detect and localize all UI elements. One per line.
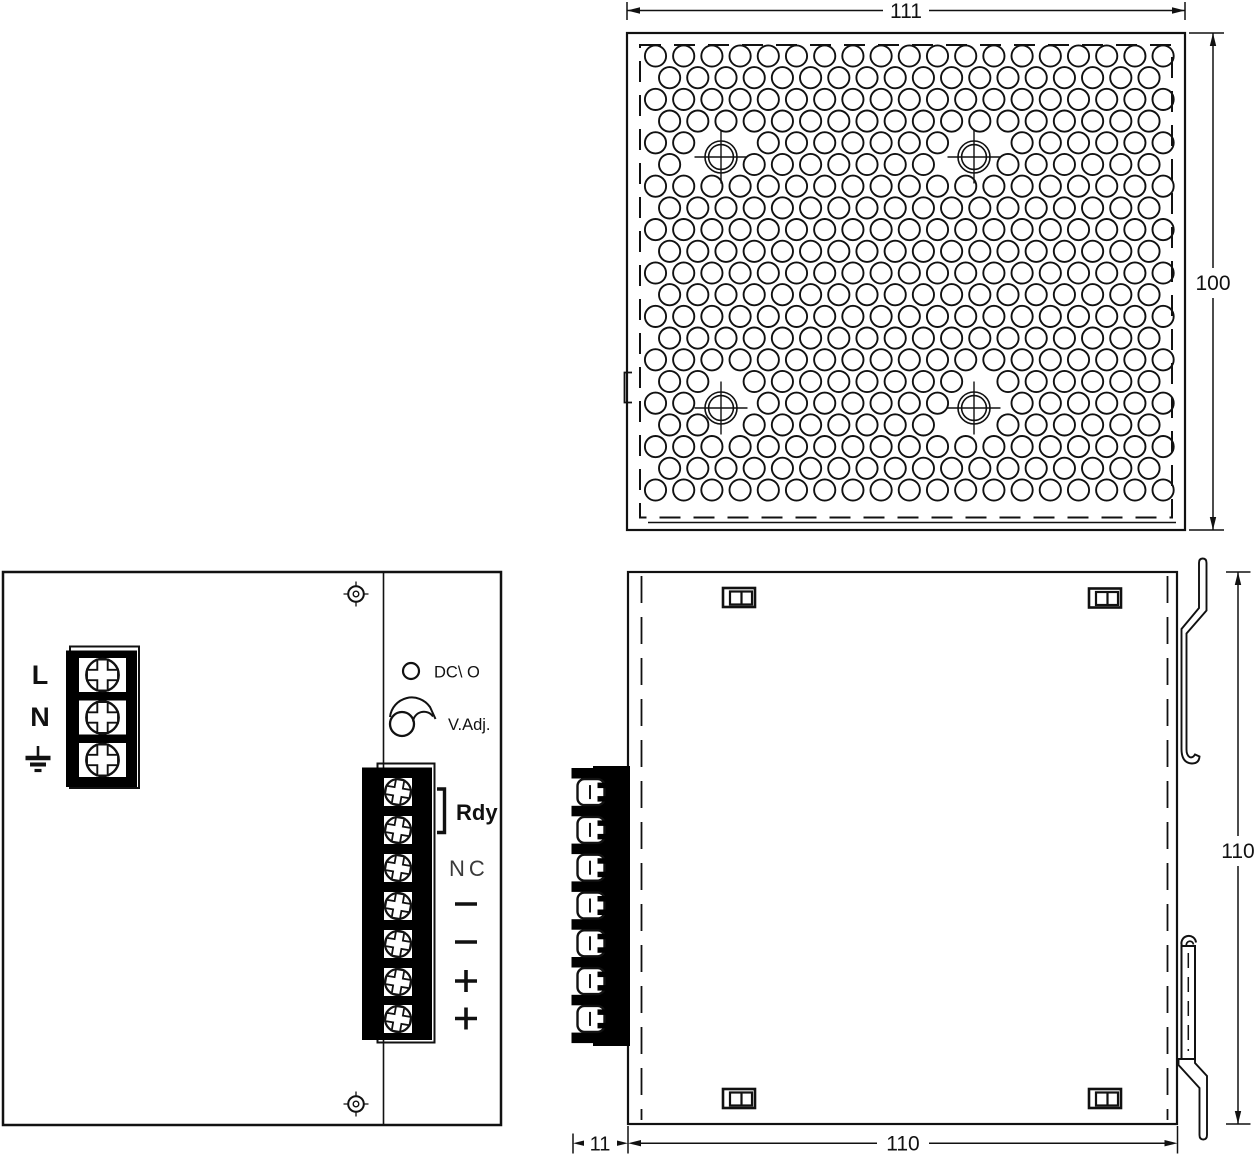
vent-hole bbox=[744, 284, 765, 305]
input-terminal-screw[interactable] bbox=[79, 658, 126, 692]
vent-hole bbox=[645, 436, 666, 457]
vent-hole bbox=[1068, 219, 1089, 240]
vent-hole bbox=[842, 45, 863, 66]
vent-hole bbox=[645, 176, 666, 197]
vent-hole bbox=[828, 284, 849, 305]
vent-hole bbox=[659, 111, 680, 132]
vent-hole bbox=[828, 371, 849, 392]
vent-hole bbox=[673, 479, 694, 500]
vent-hole bbox=[1124, 89, 1145, 110]
vent-hole bbox=[758, 219, 779, 240]
dim-arrow-right bbox=[1172, 7, 1185, 13]
vent-hole bbox=[673, 89, 694, 110]
vent-hole bbox=[1068, 262, 1089, 283]
vent-hole bbox=[828, 154, 849, 175]
vent-hole bbox=[1012, 262, 1033, 283]
vent-hole bbox=[899, 45, 920, 66]
vent-hole bbox=[1068, 349, 1089, 370]
vent-hole bbox=[715, 284, 736, 305]
vent-hole bbox=[786, 176, 807, 197]
vent-hole bbox=[701, 89, 722, 110]
vent-hole bbox=[899, 479, 920, 500]
vent-hole bbox=[927, 89, 948, 110]
vent-hole bbox=[927, 306, 948, 327]
vent-hole bbox=[871, 436, 892, 457]
vent-hole bbox=[955, 45, 976, 66]
vent-hole bbox=[1138, 111, 1159, 132]
vent-hole bbox=[1026, 154, 1047, 175]
vent-hole bbox=[1124, 45, 1145, 66]
vent-hole bbox=[659, 371, 680, 392]
vent-hole bbox=[800, 241, 821, 262]
vent-hole bbox=[885, 197, 906, 218]
vent-hole bbox=[941, 197, 962, 218]
vent-hole bbox=[927, 436, 948, 457]
vent-hole bbox=[715, 111, 736, 132]
vent-hole bbox=[1153, 219, 1174, 240]
screw-notch-top bbox=[598, 934, 607, 940]
vent-hole bbox=[871, 132, 892, 153]
vent-hole bbox=[1012, 306, 1033, 327]
vent-hole bbox=[885, 111, 906, 132]
output-terminal-screw[interactable] bbox=[384, 892, 413, 921]
screw-notch-top bbox=[598, 858, 607, 864]
vent-hole bbox=[913, 414, 934, 435]
output-terminal-screw[interactable] bbox=[384, 816, 413, 845]
vent-hole bbox=[659, 197, 680, 218]
input-terminal-screw[interactable] bbox=[79, 743, 126, 777]
vent-hole bbox=[955, 349, 976, 370]
screw-notch-top bbox=[598, 783, 607, 789]
vent-hole bbox=[1054, 67, 1075, 88]
dim-arrow-down bbox=[1210, 517, 1216, 530]
vent-hole bbox=[997, 241, 1018, 262]
vent-hole bbox=[772, 241, 793, 262]
vent-hole bbox=[772, 67, 793, 88]
vent-hole bbox=[701, 436, 722, 457]
vent-hole bbox=[1153, 436, 1174, 457]
vent-hole bbox=[1012, 219, 1033, 240]
vent-hole bbox=[1054, 371, 1075, 392]
vent-hole bbox=[744, 111, 765, 132]
vent-hole bbox=[913, 458, 934, 479]
vent-hole bbox=[786, 349, 807, 370]
vent-hole bbox=[856, 371, 877, 392]
case-screw bbox=[344, 582, 369, 607]
vent-hole bbox=[772, 371, 793, 392]
vent-hole bbox=[1040, 45, 1061, 66]
vent-hole bbox=[730, 479, 751, 500]
vent-hole bbox=[1110, 111, 1131, 132]
side-terminal-screw bbox=[578, 968, 607, 994]
top-view: 111 100 bbox=[625, 0, 1237, 530]
vent-hole bbox=[1110, 67, 1131, 88]
vent-hole bbox=[899, 306, 920, 327]
vent-hole bbox=[758, 393, 779, 414]
vent-hole bbox=[659, 414, 680, 435]
vent-hole bbox=[842, 132, 863, 153]
terminal-fin bbox=[572, 957, 595, 968]
vent-hole bbox=[885, 284, 906, 305]
voltage-adjust-pot[interactable] bbox=[390, 697, 436, 736]
vent-hole bbox=[1138, 371, 1159, 392]
vent-hole bbox=[899, 436, 920, 457]
vent-hole bbox=[758, 349, 779, 370]
vent-hole bbox=[730, 262, 751, 283]
vent-hole bbox=[1082, 458, 1103, 479]
vent-hole bbox=[1124, 262, 1145, 283]
vent-hole bbox=[913, 284, 934, 305]
vent-hole bbox=[856, 241, 877, 262]
vent-hole bbox=[1068, 89, 1089, 110]
vent-hole bbox=[899, 89, 920, 110]
vent-hole bbox=[955, 89, 976, 110]
vent-hole bbox=[800, 111, 821, 132]
vent-hole bbox=[842, 349, 863, 370]
vent-hole bbox=[758, 479, 779, 500]
vent-hole bbox=[1040, 349, 1061, 370]
vent-hole bbox=[983, 306, 1004, 327]
vent-hole bbox=[1096, 176, 1117, 197]
nc-label: NC bbox=[449, 856, 489, 881]
vent-hole bbox=[899, 132, 920, 153]
vent-slots bbox=[723, 588, 1121, 1108]
vent-hole bbox=[1026, 111, 1047, 132]
vent-hole bbox=[800, 67, 821, 88]
dim-arrow-up bbox=[1235, 572, 1241, 585]
vent-hole bbox=[1054, 154, 1075, 175]
vent-hole bbox=[701, 479, 722, 500]
vent-hole bbox=[856, 284, 877, 305]
vent-hole bbox=[927, 479, 948, 500]
vent-slot bbox=[723, 588, 755, 607]
din-clip-lower-latch[interactable] bbox=[1179, 936, 1208, 1140]
vent-hole bbox=[1068, 306, 1089, 327]
plus-label-icon bbox=[455, 1008, 477, 1030]
vent-hole bbox=[1026, 284, 1047, 305]
vent-hole bbox=[730, 176, 751, 197]
vent-hole bbox=[715, 241, 736, 262]
vent-hole bbox=[1153, 262, 1174, 283]
output-terminal-screw[interactable] bbox=[384, 1005, 413, 1034]
vent-hole bbox=[983, 479, 1004, 500]
terminal-fin bbox=[572, 919, 595, 930]
input-terminal-screw[interactable] bbox=[79, 701, 126, 735]
vent-hole bbox=[955, 219, 976, 240]
vent-hole bbox=[941, 328, 962, 349]
vent-hole bbox=[673, 132, 694, 153]
pot-knob-icon[interactable] bbox=[390, 712, 414, 736]
vent-hole bbox=[673, 219, 694, 240]
screw-head bbox=[348, 586, 364, 602]
vent-hole bbox=[913, 111, 934, 132]
vent-hole bbox=[856, 111, 877, 132]
dim-top-height: 100 bbox=[1189, 33, 1236, 530]
dim-side-height-label: 110 bbox=[1221, 840, 1254, 863]
vent-hole bbox=[1096, 132, 1117, 153]
vent-hole bbox=[871, 45, 892, 66]
output-terminal-screw[interactable] bbox=[384, 930, 413, 959]
terminal-fin bbox=[572, 995, 595, 1006]
vent-hole bbox=[786, 393, 807, 414]
output-terminal-screw[interactable] bbox=[384, 854, 413, 883]
vent-hole bbox=[969, 458, 990, 479]
vent-hole bbox=[871, 393, 892, 414]
vent-hole bbox=[744, 414, 765, 435]
vent-hole bbox=[758, 45, 779, 66]
terminal-fin bbox=[572, 806, 595, 817]
vent-hole bbox=[997, 284, 1018, 305]
vent-hole bbox=[1012, 176, 1033, 197]
vent-hole bbox=[885, 328, 906, 349]
din-clip-upper-spring bbox=[1182, 559, 1207, 764]
vent-hole bbox=[941, 458, 962, 479]
vent-hole bbox=[913, 241, 934, 262]
terminal-fin bbox=[572, 881, 595, 892]
vent-hole bbox=[927, 349, 948, 370]
vent-hole bbox=[1040, 132, 1061, 153]
vent-hole bbox=[1082, 197, 1103, 218]
vent-hole bbox=[772, 197, 793, 218]
dim-arrow-down bbox=[1235, 1111, 1241, 1124]
vent-hole bbox=[941, 284, 962, 305]
vent-hole bbox=[1026, 414, 1047, 435]
vent-hole bbox=[885, 67, 906, 88]
ventilation-hole-pattern bbox=[645, 45, 1174, 500]
vent-hole bbox=[800, 284, 821, 305]
vent-hole bbox=[730, 349, 751, 370]
vent-slot bbox=[1089, 1089, 1121, 1108]
vent-hole bbox=[828, 414, 849, 435]
vent-hole bbox=[1012, 436, 1033, 457]
vent-hole bbox=[772, 111, 793, 132]
vent-hole bbox=[856, 328, 877, 349]
vent-hole bbox=[687, 67, 708, 88]
vent-hole bbox=[969, 67, 990, 88]
vent-hole bbox=[1040, 219, 1061, 240]
vent-hole bbox=[1040, 393, 1061, 414]
mounting-crosshair bbox=[948, 382, 1001, 435]
vent-hole bbox=[786, 132, 807, 153]
vent-hole bbox=[1082, 414, 1103, 435]
vent-hole bbox=[871, 349, 892, 370]
vent-hole bbox=[673, 393, 694, 414]
vent-hole bbox=[1138, 154, 1159, 175]
vent-hole bbox=[941, 111, 962, 132]
vent-hole bbox=[772, 328, 793, 349]
vent-hole bbox=[659, 284, 680, 305]
dim-top-width-label: 111 bbox=[890, 0, 922, 23]
vent-hole bbox=[969, 241, 990, 262]
vent-hole bbox=[1026, 458, 1047, 479]
pot-rotation-arc-inner bbox=[413, 712, 433, 722]
vent-hole bbox=[1012, 132, 1033, 153]
vent-hole bbox=[659, 241, 680, 262]
vent-hole bbox=[673, 306, 694, 327]
vent-hole bbox=[1096, 219, 1117, 240]
vent-hole bbox=[701, 349, 722, 370]
vent-hole bbox=[1153, 349, 1174, 370]
relay-label: Rdy bbox=[456, 800, 498, 825]
vent-hole bbox=[1138, 328, 1159, 349]
vent-hole bbox=[842, 306, 863, 327]
vent-hole bbox=[730, 219, 751, 240]
vent-hole bbox=[1054, 414, 1075, 435]
plus-label-icon bbox=[455, 970, 477, 992]
vent-hole bbox=[983, 219, 1004, 240]
vent-hole bbox=[645, 349, 666, 370]
vent-hole bbox=[842, 89, 863, 110]
terminal-fin bbox=[572, 844, 595, 855]
side-view-outline bbox=[628, 572, 1177, 1124]
vent-hole bbox=[1012, 393, 1033, 414]
vent-hole bbox=[1054, 328, 1075, 349]
vent-hole bbox=[730, 45, 751, 66]
vent-hole bbox=[645, 132, 666, 153]
vent-hole bbox=[1040, 306, 1061, 327]
top-view-side-tab bbox=[625, 373, 633, 403]
vent-hole bbox=[701, 45, 722, 66]
vent-hole bbox=[1096, 436, 1117, 457]
vent-hole bbox=[871, 479, 892, 500]
vent-hole bbox=[814, 306, 835, 327]
vent-hole bbox=[997, 328, 1018, 349]
vent-hole bbox=[758, 176, 779, 197]
vent-hole bbox=[645, 262, 666, 283]
vent-hole bbox=[885, 371, 906, 392]
vent-hole bbox=[1110, 371, 1131, 392]
vent-hole bbox=[701, 219, 722, 240]
vent-hole bbox=[1040, 89, 1061, 110]
vent-hole bbox=[828, 328, 849, 349]
terminal-fin bbox=[572, 768, 595, 779]
vent-hole bbox=[955, 306, 976, 327]
vent-hole bbox=[842, 393, 863, 414]
vent-hole bbox=[715, 67, 736, 88]
vent-hole bbox=[673, 45, 694, 66]
vent-hole bbox=[645, 479, 666, 500]
vent-hole bbox=[913, 154, 934, 175]
dim-arrow-right bbox=[1165, 1140, 1178, 1146]
vent-hole bbox=[969, 197, 990, 218]
vent-hole bbox=[927, 176, 948, 197]
vent-hole bbox=[927, 219, 948, 240]
dim-arrow-up bbox=[1210, 33, 1216, 46]
vent-hole bbox=[1110, 458, 1131, 479]
vent-hole bbox=[786, 89, 807, 110]
vent-hole bbox=[730, 306, 751, 327]
screw-notch-bottom bbox=[598, 834, 607, 840]
vent-hole bbox=[701, 306, 722, 327]
screw-head bbox=[348, 1096, 364, 1112]
screw-notch-bottom bbox=[598, 947, 607, 953]
vent-hole bbox=[871, 89, 892, 110]
vent-hole bbox=[913, 197, 934, 218]
vent-hole bbox=[871, 219, 892, 240]
dim-terminal-depth: 11 bbox=[573, 1134, 628, 1155]
vent-hole bbox=[955, 436, 976, 457]
vent-hole bbox=[1153, 306, 1174, 327]
vent-hole bbox=[1124, 479, 1145, 500]
dim-side-width: 110 bbox=[628, 1126, 1178, 1155]
vent-hole bbox=[744, 328, 765, 349]
vent-hole bbox=[899, 176, 920, 197]
chassis-ground-icon bbox=[26, 746, 51, 771]
vent-hole bbox=[814, 262, 835, 283]
vent-hole bbox=[1138, 67, 1159, 88]
vent-hole bbox=[687, 197, 708, 218]
vent-hole bbox=[814, 219, 835, 240]
vent-hole bbox=[1138, 197, 1159, 218]
vent-hole bbox=[659, 458, 680, 479]
vent-hole bbox=[1068, 176, 1089, 197]
vent-hole bbox=[1040, 176, 1061, 197]
vent-hole bbox=[1096, 262, 1117, 283]
vent-hole bbox=[842, 262, 863, 283]
vent-hole bbox=[1012, 45, 1033, 66]
vent-hole bbox=[814, 479, 835, 500]
front-view: L N DC\ O V.Adj. Rdy NC bbox=[3, 572, 501, 1125]
voltage-adjust-label: V.Adj. bbox=[448, 716, 491, 734]
vent-hole bbox=[786, 479, 807, 500]
dim-top-width: 111 bbox=[627, 0, 1185, 23]
vent-hole bbox=[885, 458, 906, 479]
vent-hole bbox=[1110, 241, 1131, 262]
dim-arrow-left bbox=[628, 1140, 641, 1146]
vent-hole bbox=[856, 414, 877, 435]
terminal-fin bbox=[572, 1033, 595, 1044]
dim-side-height: 110 bbox=[1216, 572, 1254, 1124]
vent-hole bbox=[983, 89, 1004, 110]
vent-hole bbox=[955, 176, 976, 197]
vent-hole bbox=[1054, 458, 1075, 479]
vent-hole bbox=[814, 45, 835, 66]
output-terminal-screw[interactable] bbox=[384, 968, 413, 997]
vent-hole bbox=[645, 306, 666, 327]
vent-hole bbox=[1124, 219, 1145, 240]
vent-hole bbox=[899, 262, 920, 283]
vent-hole bbox=[1068, 132, 1089, 153]
vent-hole bbox=[758, 436, 779, 457]
vent-hole bbox=[842, 219, 863, 240]
vent-hole bbox=[1153, 132, 1174, 153]
vent-hole bbox=[772, 414, 793, 435]
vent-hole bbox=[941, 67, 962, 88]
vent-hole bbox=[814, 132, 835, 153]
vent-hole bbox=[659, 328, 680, 349]
screw-notch-top bbox=[598, 820, 607, 826]
vent-hole bbox=[1138, 458, 1159, 479]
vent-hole bbox=[1124, 436, 1145, 457]
dim-arrow-left bbox=[627, 7, 640, 13]
output-terminal-screw[interactable] bbox=[384, 778, 413, 807]
vent-hole bbox=[913, 371, 934, 392]
vent-hole bbox=[983, 436, 1004, 457]
relay-contact-bracket bbox=[437, 789, 445, 833]
vent-hole bbox=[786, 219, 807, 240]
side-terminal-screw bbox=[578, 930, 607, 956]
vent-hole bbox=[1138, 241, 1159, 262]
vent-hole bbox=[856, 67, 877, 88]
vent-hole bbox=[1124, 393, 1145, 414]
vent-hole bbox=[1096, 45, 1117, 66]
case-screw bbox=[344, 1092, 369, 1117]
output-terminal-block bbox=[362, 764, 435, 1043]
vent-hole bbox=[715, 458, 736, 479]
vent-hole bbox=[687, 414, 708, 435]
vent-hole bbox=[997, 111, 1018, 132]
vent-hole bbox=[885, 241, 906, 262]
